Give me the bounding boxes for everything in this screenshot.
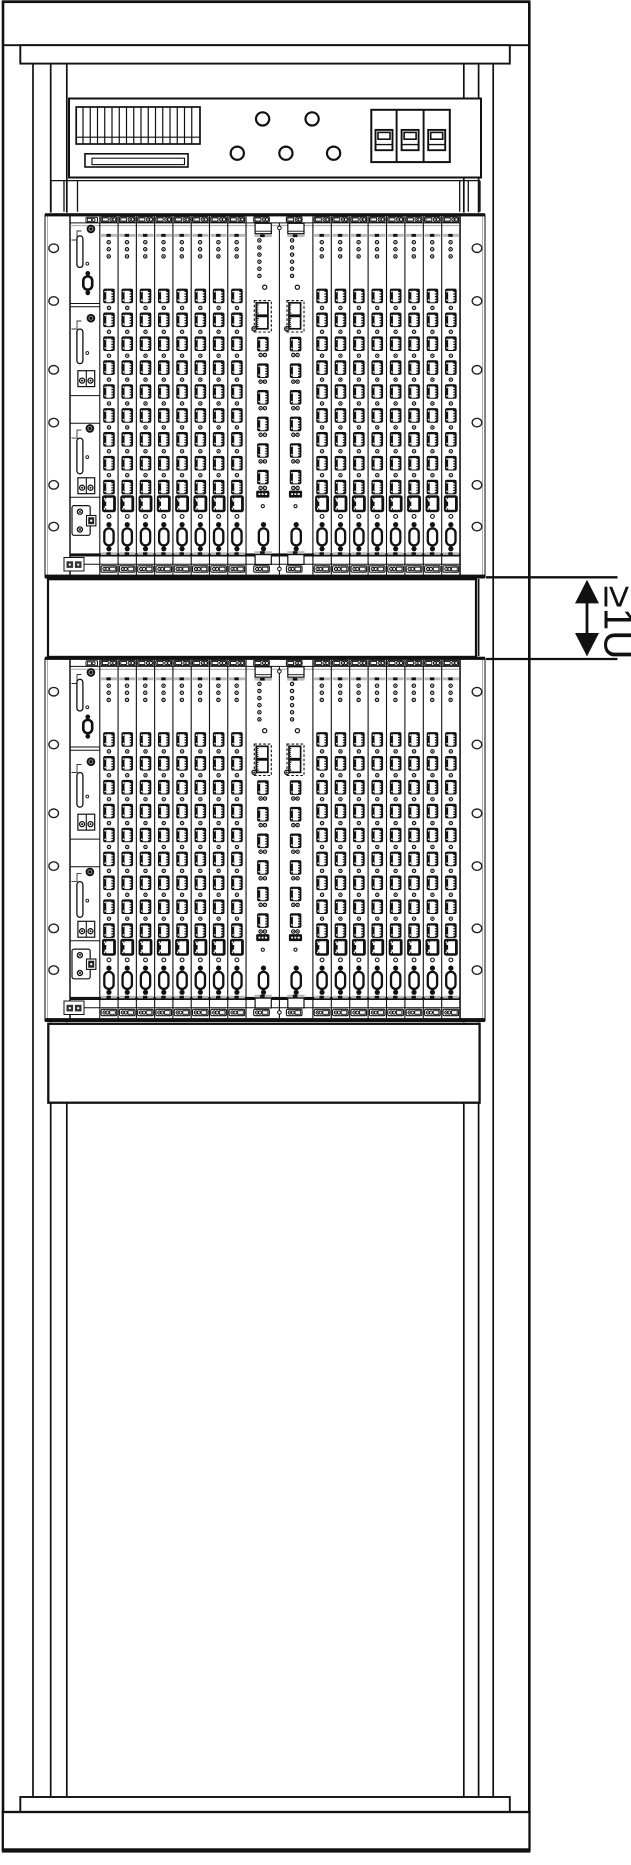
svg-text:≥1U: ≥1U — [596, 586, 631, 660]
